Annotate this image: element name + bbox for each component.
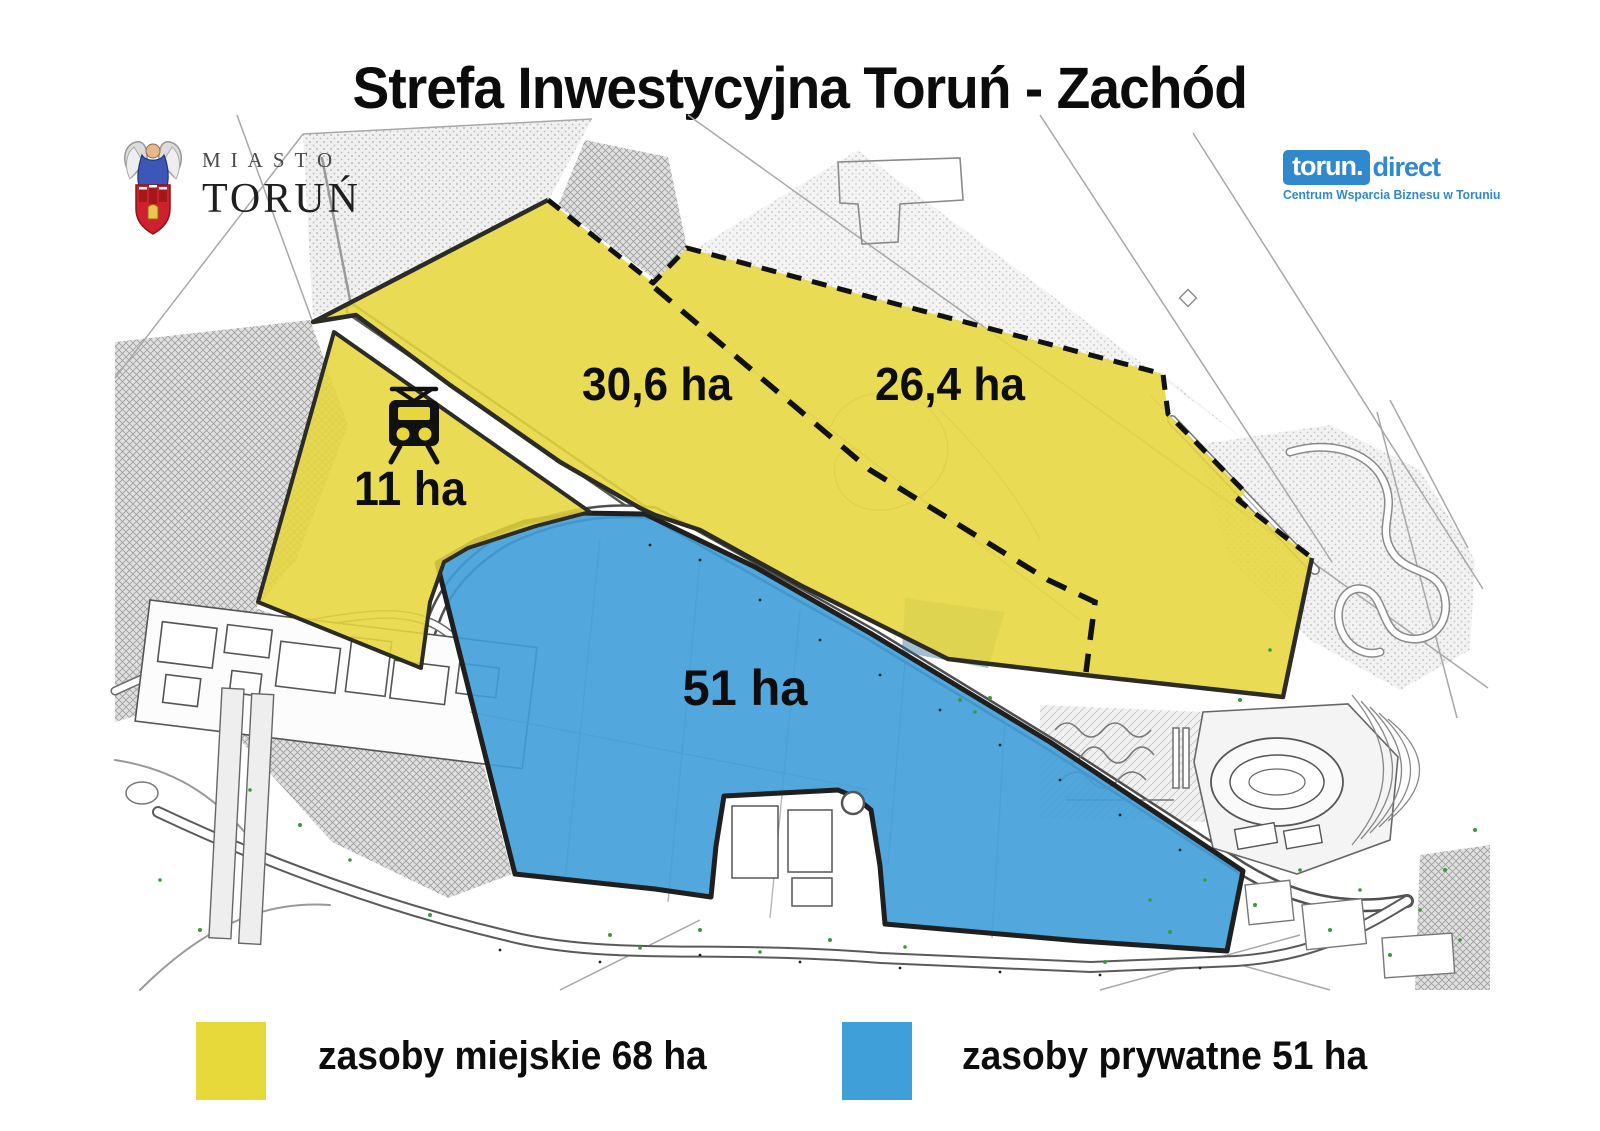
infographic-page: 30,6 ha 26,4 ha 11 ha 51 ha Strefa Inwes… [0,0,1600,1131]
legend-swatch-private [842,1022,912,1100]
torun-direct-brand-box: torun. [1283,150,1370,185]
legend-label-private: zasoby prywatne 51 ha [962,1034,1398,1079]
pond [126,782,158,804]
legend-swatch-city [196,1022,266,1100]
city-logo-line1: MIASTO [202,148,361,173]
cutout-buildings [732,806,832,906]
torun-crest-icon [118,136,188,238]
torun-direct-logo: torun. direct Centrum Wsparcia Biznesu w… [1283,150,1493,202]
small-diamond-marker [1180,290,1197,307]
roundabout [842,792,864,814]
torun-direct-brand-rest: direct [1372,152,1440,183]
legend-label-city: zasoby miejskie 68 ha [318,1034,736,1079]
label-area-51: 51 ha [683,660,809,716]
label-area-30-6: 30,6 ha [582,358,732,410]
label-area-11: 11 ha [354,463,466,516]
torun-direct-tagline: Centrum Wsparcia Biznesu w Toruniu [1283,188,1487,202]
city-of-torun-logo: MIASTO TORUŃ [118,136,361,238]
label-area-26-4: 26,4 ha [875,358,1025,410]
stadium [1194,704,1398,874]
city-logo-line2: TORUŃ [202,175,361,223]
